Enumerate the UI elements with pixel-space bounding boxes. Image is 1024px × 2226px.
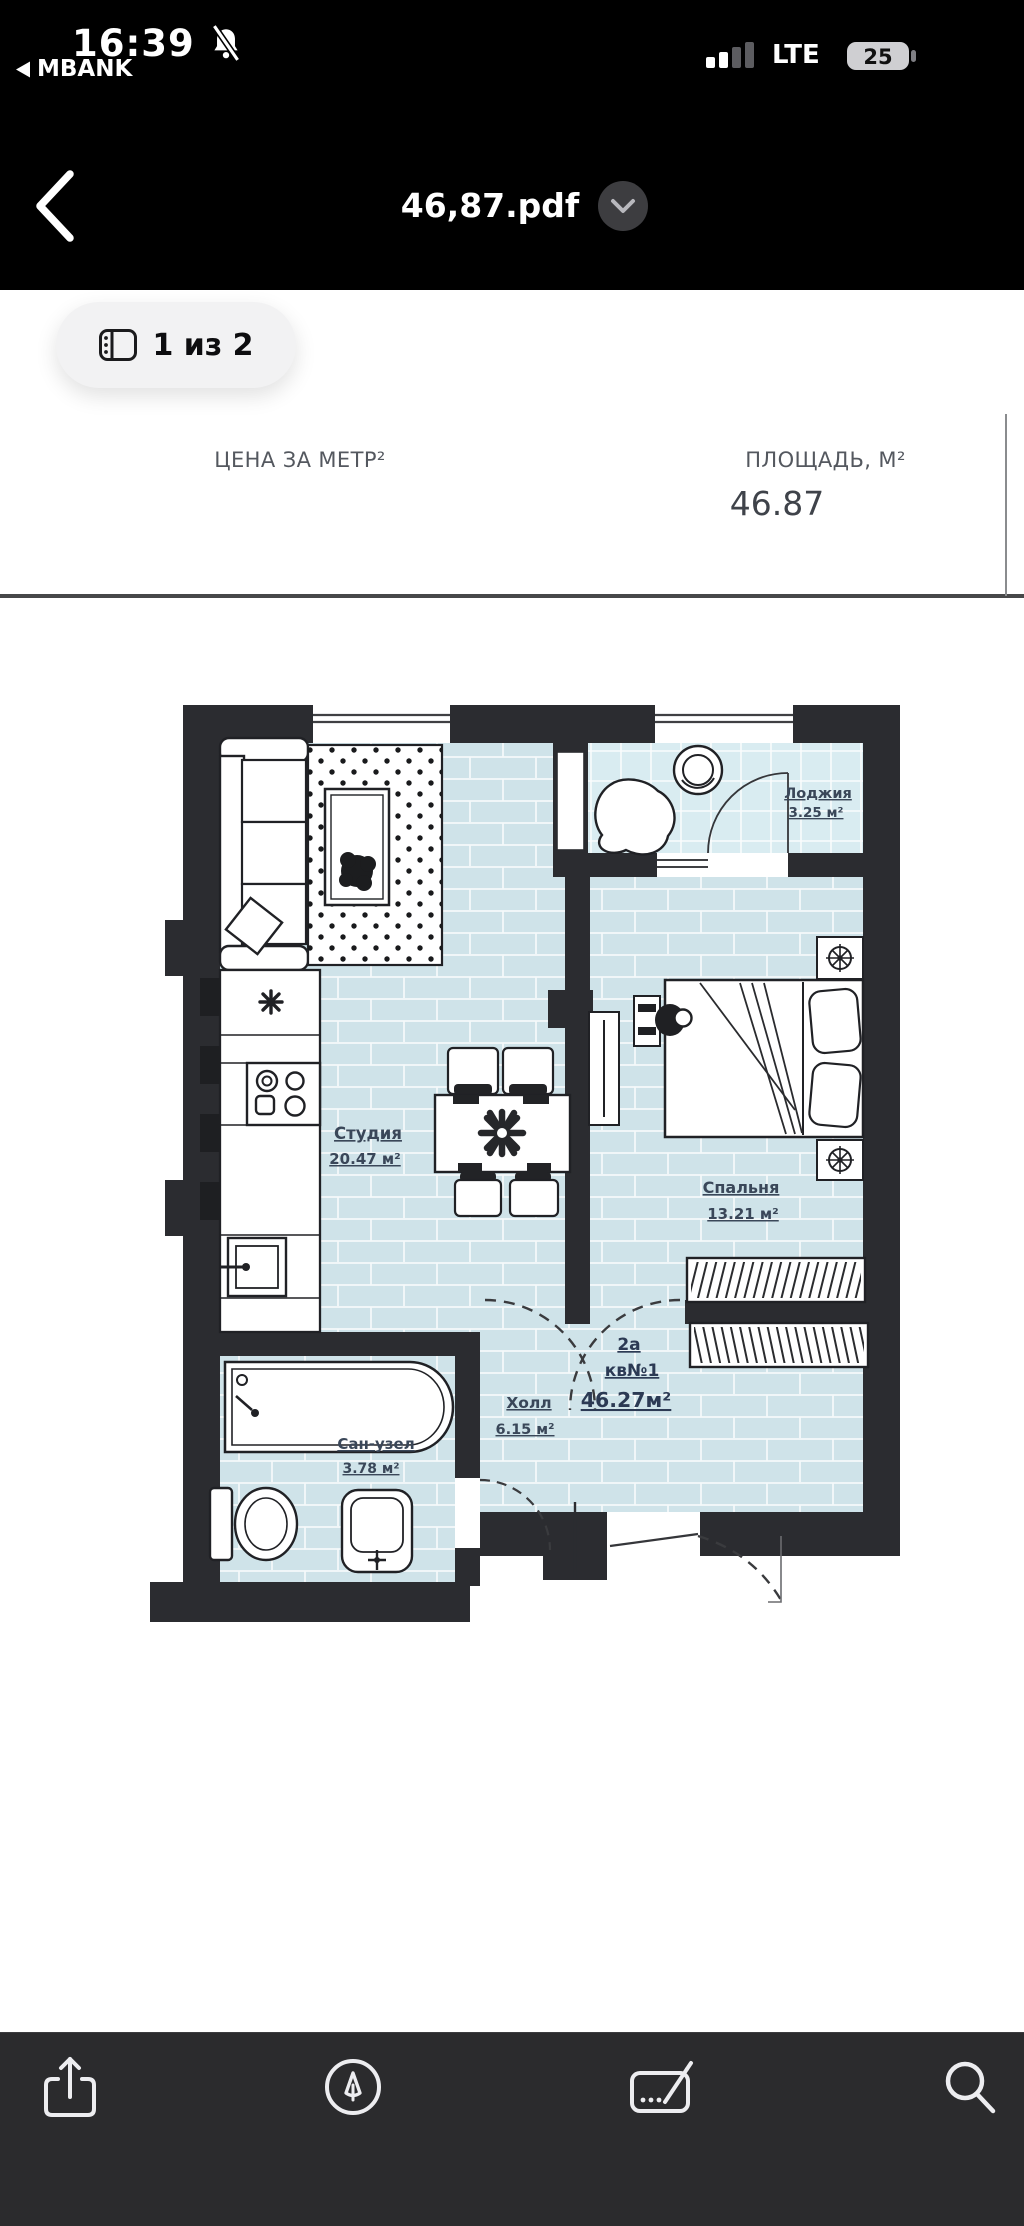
search-button[interactable]: [932, 2049, 1008, 2125]
radiator-bottom: [817, 1140, 863, 1180]
loggia-basin: [674, 746, 722, 794]
battery-percent: 25: [863, 45, 892, 69]
return-app-label: MBANK: [37, 56, 132, 82]
return-to-app-button[interactable]: MBANK: [16, 56, 132, 82]
table-divider: [0, 594, 1024, 598]
bottom-toolbar: [0, 2032, 1024, 2226]
status-nav-bar: 16:39 MBANK LTE 25 46,87.pdf: [0, 0, 1024, 290]
apartment-block: 2а: [617, 1335, 640, 1355]
room-area-loggia: 3.25 м²: [789, 805, 844, 821]
room-area-bedroom: 13.21 м²: [707, 1205, 779, 1223]
vent-symbol: [260, 991, 282, 1013]
price-per-meter-header: ЦЕНА ЗА МЕТР²: [150, 448, 450, 472]
markup-icon: [321, 2055, 385, 2119]
plant-blob: [339, 852, 376, 891]
floor-plan: Лоджия 3.25 м² Студия 20.47 м² Спальня 1…: [140, 690, 920, 1650]
apartment-unit: кв№1: [605, 1361, 660, 1381]
document-title: 46,87.pdf: [340, 186, 640, 225]
apartment-total-area: 46.27м²: [581, 1388, 672, 1412]
area-value: 46.87: [688, 484, 866, 523]
stove: [247, 1063, 320, 1125]
markup-button[interactable]: [315, 2049, 391, 2125]
share-button[interactable]: [32, 2049, 108, 2125]
room-label-hall: Холл: [506, 1394, 551, 1412]
room-label-bathroom: Сан-узел: [337, 1435, 414, 1453]
rug: [308, 745, 442, 965]
page-indicator-label: 1 из 2: [152, 328, 253, 363]
table-right-border: [1005, 414, 1007, 596]
room-area-bathroom: 3.78 м²: [343, 1461, 400, 1477]
pages-icon: [98, 328, 138, 362]
share-icon: [38, 2055, 102, 2119]
radiator-top: [817, 937, 863, 979]
title-menu-button[interactable]: [598, 181, 648, 231]
search-icon: [938, 2055, 1002, 2119]
chevron-left-icon[interactable]: [30, 166, 78, 246]
coffee-table: [325, 789, 389, 905]
cellular-bars-icon: [706, 38, 758, 70]
room-label-loggia: Лоджия: [784, 786, 852, 802]
bell-slash-icon: [208, 24, 244, 62]
battery-icon: 25: [846, 40, 920, 72]
room-label-studio: Студия: [334, 1124, 402, 1143]
area-header: ПЛОЩАДЬ, М²: [688, 448, 963, 472]
signature-button[interactable]: [622, 2049, 698, 2125]
signature-icon: [626, 2055, 694, 2119]
toilet: [210, 1488, 232, 1560]
chevron-down-icon: [610, 198, 636, 214]
room-area-hall: 6.15 м²: [495, 1422, 554, 1438]
triangle-left-icon: [16, 61, 30, 78]
network-type: LTE: [772, 40, 820, 70]
sofa: [220, 738, 308, 970]
room-label-bedroom: Спальня: [703, 1178, 780, 1197]
room-area-studio: 20.47 м²: [329, 1150, 401, 1168]
page-indicator-pill[interactable]: 1 из 2: [56, 302, 296, 388]
